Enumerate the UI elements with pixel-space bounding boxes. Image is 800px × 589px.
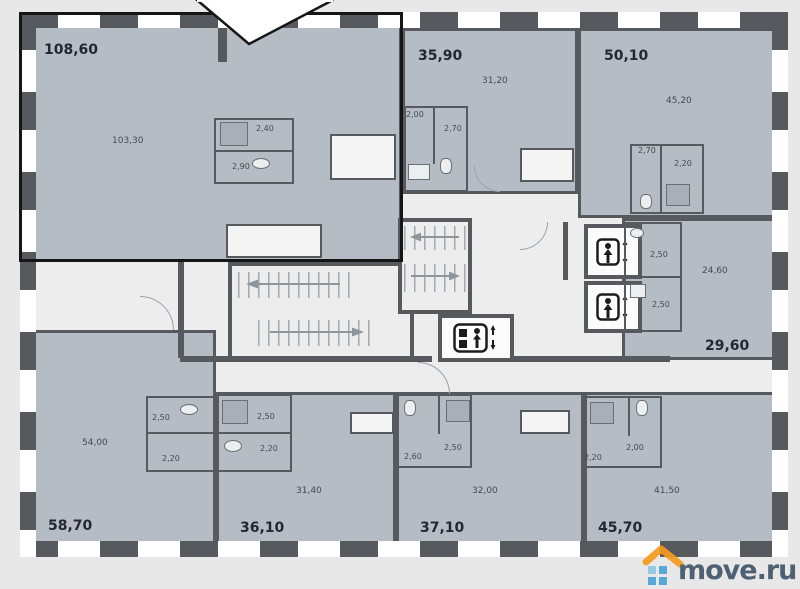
- apartment-total-area: 50,10: [604, 48, 648, 64]
- bathroom-divider: [146, 432, 216, 434]
- wall-stub: [178, 262, 184, 358]
- bathroom-divider: [438, 394, 440, 434]
- sink-fixture: [630, 228, 644, 238]
- shower-fixture: [666, 184, 690, 206]
- room-area: 2,00: [626, 443, 644, 452]
- room-area: 2,00: [406, 110, 424, 119]
- toilet-fixture: [440, 158, 452, 174]
- callout-pointer: [190, 0, 340, 48]
- tub-fixture: [408, 164, 430, 180]
- freight-elevator: [438, 314, 514, 362]
- room-area: 54,00: [82, 438, 108, 448]
- sink-fixture: [224, 440, 242, 452]
- bathroom-divider: [433, 106, 435, 164]
- room-area: 2,50: [152, 413, 170, 422]
- room-area: 2,50: [257, 412, 275, 421]
- balcony: [520, 148, 574, 182]
- room-area: 2,50: [652, 300, 670, 309]
- wall-stub: [563, 222, 568, 280]
- balcony: [520, 410, 570, 434]
- stair-arrow-icon: [260, 326, 370, 338]
- apartment-total-area: 45,70: [598, 520, 642, 536]
- floorplan-page: 108,60 103,30 2,40 2,90 35,90 31,20 2,00…: [0, 0, 800, 589]
- room-area: 31,20: [482, 76, 508, 86]
- apartment-total-area: 36,10: [240, 520, 284, 536]
- door-arc: [418, 362, 450, 394]
- room-area: 2,20: [584, 453, 602, 462]
- room-area: 32,00: [472, 486, 498, 496]
- bathroom-divider: [660, 144, 662, 214]
- room-area: 41,50: [654, 486, 680, 496]
- apartment-total-area: 35,90: [418, 48, 462, 64]
- shower-fixture: [590, 402, 614, 424]
- door-arc: [520, 222, 548, 250]
- stair-arrow-icon: [405, 270, 465, 282]
- shower-fixture: [446, 400, 470, 422]
- bathroom-divider: [216, 432, 292, 434]
- sink-fixture: [180, 404, 198, 415]
- door-arc: [140, 296, 174, 330]
- room-area: 2,20: [162, 454, 180, 463]
- room-area: 2,70: [638, 146, 656, 155]
- outer-wall-right: [772, 12, 788, 557]
- room-area: 2,50: [444, 443, 462, 452]
- room-area: 2,50: [650, 250, 668, 259]
- room-area: 2,20: [260, 444, 278, 453]
- move-ru-watermark[interactable]: move.ru: [634, 536, 798, 588]
- room-area: 45,20: [666, 96, 692, 106]
- room-area: 2,70: [444, 124, 462, 133]
- selected-apartment-outline[interactable]: [19, 12, 403, 262]
- apartment-total-area: 29,60: [705, 338, 749, 354]
- move-ru-logo-text: move.ru: [678, 557, 796, 584]
- balcony: [350, 412, 394, 434]
- sink-fixture: [630, 284, 646, 298]
- apartment-total-area: 58,70: [48, 518, 92, 534]
- toilet-fixture: [404, 400, 416, 416]
- room-area: 2,20: [674, 159, 692, 168]
- apartment-total-area: 37,10: [420, 520, 464, 536]
- freight-elevator-icon: [453, 323, 499, 353]
- shower-fixture: [222, 400, 248, 424]
- bathroom-divider: [624, 276, 682, 278]
- toilet-fixture: [636, 400, 648, 416]
- stair-arrow-icon: [405, 231, 465, 243]
- room-area: 2,60: [404, 452, 422, 461]
- toilet-fixture: [640, 194, 652, 209]
- bathroom-divider: [628, 396, 630, 436]
- stair-arrow-icon: [240, 278, 350, 290]
- room-area: 31,40: [296, 486, 322, 496]
- room-area: 24,60: [702, 266, 728, 276]
